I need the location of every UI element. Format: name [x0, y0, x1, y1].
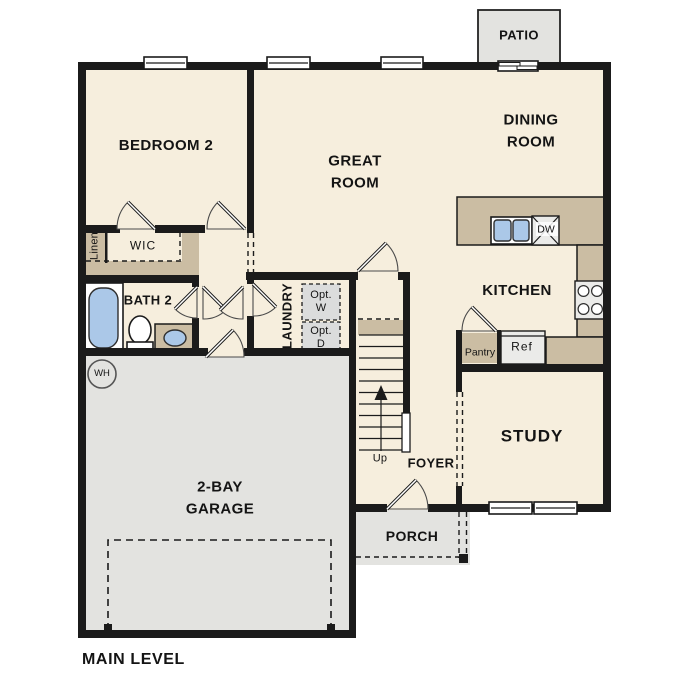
- room-label-garage: 2-BAY GARAGE: [186, 476, 254, 520]
- vanity-sink: [164, 330, 186, 346]
- room-label-great-room: GREAT ROOM: [328, 150, 381, 194]
- room-label-linen: Linen: [88, 232, 101, 260]
- kitchen-sink-basin-left: [494, 220, 511, 241]
- patio-slider-door: [498, 61, 538, 71]
- room-label-patio: PATIO: [499, 27, 539, 46]
- hall-strip: [85, 261, 199, 276]
- stove: [575, 281, 604, 319]
- stair-landing: [358, 320, 403, 335]
- great-room-window: [267, 57, 310, 69]
- label-refrigerator: Ref: [511, 338, 533, 355]
- room-label-wic: WIC: [130, 237, 156, 254]
- room-label-porch: PORCH: [386, 526, 439, 546]
- bathtub: [89, 288, 118, 348]
- label-pantry: Pantry: [465, 345, 495, 360]
- room-label-kitchen: KITCHEN: [482, 280, 551, 302]
- label-water-heater: WH: [94, 367, 110, 381]
- floor-plan-drawing: [0, 0, 687, 687]
- label-stairs-up: Up: [373, 452, 387, 465]
- study-window-right: [534, 502, 577, 514]
- study-window-left: [489, 502, 532, 514]
- bedroom-window: [144, 57, 187, 69]
- label-optional-dryer: Opt. D: [310, 325, 332, 351]
- floor-plan: PATIO BEDROOM 2 GREAT ROOM DINING ROOM K…: [0, 0, 687, 687]
- room-label-bedroom2: BEDROOM 2: [119, 135, 213, 157]
- page-title: MAIN LEVEL: [82, 651, 185, 669]
- room-label-dining-room: DINING ROOM: [504, 109, 559, 153]
- label-dishwasher: DW: [537, 222, 555, 237]
- kitchen-bottom-counter: [546, 337, 604, 365]
- room-label-bath2: BATH 2: [124, 292, 172, 311]
- room-label-foyer: FOYER: [408, 455, 455, 474]
- room-label-study: STUDY: [501, 425, 564, 450]
- room-label-laundry: LAUNDRY: [279, 283, 298, 349]
- stair-handrail: [402, 413, 410, 452]
- great-room-window-2: [381, 57, 423, 69]
- floors-layer: [84, 10, 607, 632]
- label-optional-washer: Opt. W: [310, 289, 332, 315]
- kitchen-sink-basin-right: [513, 220, 529, 241]
- toilet-bowl: [129, 316, 151, 344]
